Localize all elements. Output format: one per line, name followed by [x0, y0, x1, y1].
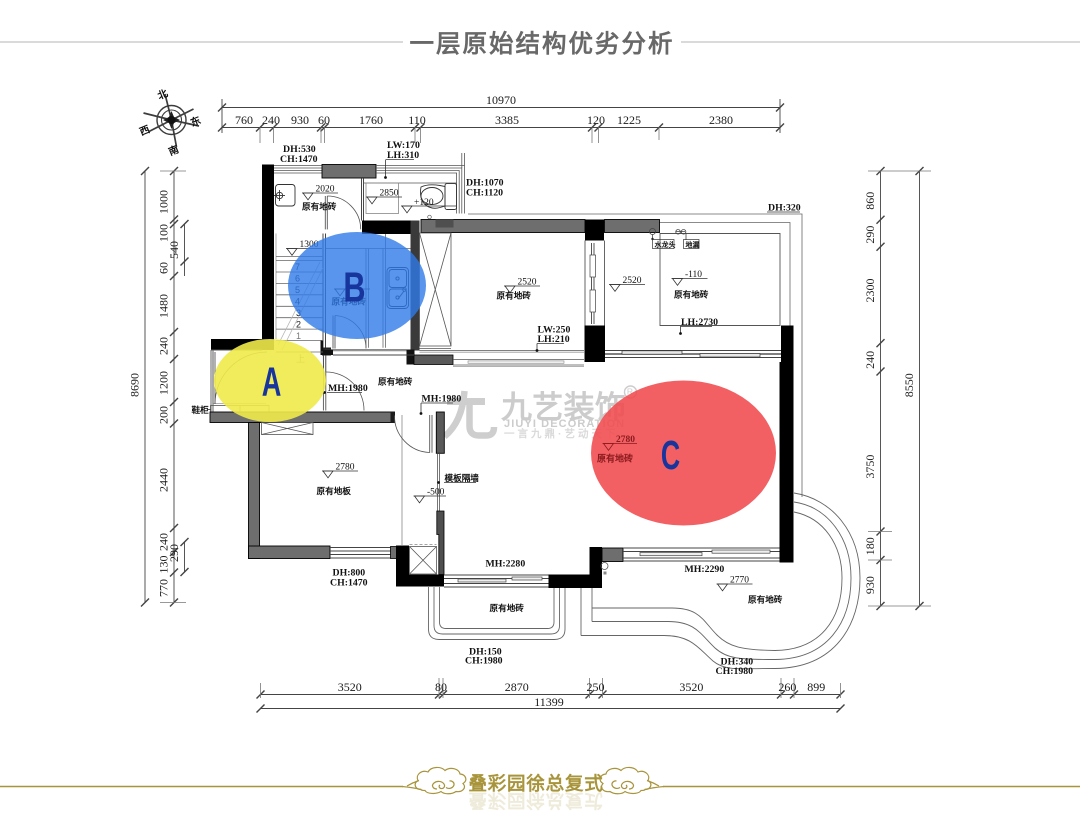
- svg-text:CH:1120: CH:1120: [466, 188, 503, 199]
- svg-text:原有地砖: 原有地砖: [497, 290, 532, 301]
- svg-text:899: 899: [807, 680, 825, 694]
- svg-text:60: 60: [318, 113, 330, 127]
- svg-text:CH:1470: CH:1470: [330, 578, 368, 589]
- svg-text:8690: 8690: [128, 373, 142, 397]
- svg-text:原有地砖: 原有地砖: [302, 201, 337, 212]
- svg-text:1200: 1200: [157, 371, 171, 395]
- svg-text:260: 260: [778, 680, 796, 694]
- svg-text:2520: 2520: [518, 278, 537, 288]
- svg-text:110: 110: [408, 113, 426, 127]
- svg-text:240: 240: [157, 337, 171, 355]
- svg-text:CH:1470: CH:1470: [280, 154, 318, 165]
- svg-text:地漏: 地漏: [686, 240, 700, 249]
- svg-text:原有地砖: 原有地砖: [490, 602, 525, 613]
- svg-text:MH:2280: MH:2280: [486, 559, 526, 570]
- svg-text:MH:2290: MH:2290: [685, 564, 725, 575]
- svg-text:原有地砖: 原有地砖: [597, 453, 633, 464]
- svg-text:2020: 2020: [316, 185, 335, 195]
- svg-text:3520: 3520: [679, 680, 703, 694]
- svg-text:水龙头: 水龙头: [655, 240, 676, 249]
- svg-text:2520: 2520: [623, 276, 642, 286]
- svg-text:2: 2: [296, 320, 301, 330]
- svg-text:2780: 2780: [616, 435, 635, 445]
- svg-text:540: 540: [167, 241, 181, 259]
- svg-text:C: C: [661, 434, 680, 479]
- svg-text:3385: 3385: [495, 113, 519, 127]
- svg-text:鞋柜: 鞋柜: [192, 404, 210, 415]
- svg-text:原有地砖: 原有地砖: [748, 594, 783, 605]
- svg-text:290: 290: [863, 226, 877, 244]
- svg-text:250: 250: [587, 680, 605, 694]
- svg-text:1: 1: [296, 331, 301, 341]
- svg-text:200: 200: [157, 406, 171, 424]
- svg-text:180: 180: [863, 537, 877, 555]
- svg-text:130: 130: [157, 556, 171, 574]
- svg-text:60: 60: [157, 262, 171, 274]
- svg-text:100: 100: [157, 224, 171, 242]
- svg-text:2380: 2380: [709, 113, 733, 127]
- svg-text:1480: 1480: [157, 294, 171, 318]
- svg-text:11399: 11399: [534, 695, 564, 709]
- svg-text:1000: 1000: [157, 190, 171, 214]
- svg-text:叠彩园徐总复式: 叠彩园徐总复式: [468, 790, 603, 811]
- svg-text:930: 930: [291, 113, 309, 127]
- svg-text:模板隔墙: 模板隔墙: [445, 472, 480, 483]
- svg-text:10970: 10970: [486, 93, 516, 107]
- svg-text:CH:1980: CH:1980: [716, 666, 754, 677]
- svg-text:8550: 8550: [902, 373, 916, 397]
- svg-text:2870: 2870: [505, 680, 529, 694]
- svg-text:+120: +120: [414, 198, 434, 208]
- svg-text:CH:1980: CH:1980: [465, 656, 503, 667]
- svg-text:3750: 3750: [863, 455, 877, 479]
- svg-text:2440: 2440: [157, 468, 171, 492]
- svg-text:一层原始结构优劣分析: 一层原始结构优劣分析: [410, 30, 675, 58]
- svg-text:2850: 2850: [380, 189, 399, 199]
- svg-text:原有地砖: 原有地砖: [378, 376, 413, 387]
- svg-text:2300: 2300: [863, 279, 877, 303]
- svg-text:3520: 3520: [338, 680, 362, 694]
- svg-text:原有地砖: 原有地砖: [674, 289, 709, 300]
- svg-text:1760: 1760: [359, 113, 383, 127]
- svg-text:A: A: [262, 360, 282, 405]
- svg-text:B: B: [343, 264, 365, 311]
- svg-text:原有地板: 原有地板: [317, 485, 352, 496]
- svg-text:860: 860: [863, 192, 877, 210]
- svg-text:770: 770: [157, 579, 171, 597]
- svg-text:760: 760: [235, 113, 253, 127]
- svg-text:2780: 2780: [336, 463, 355, 473]
- svg-text:120: 120: [587, 113, 605, 127]
- svg-text:1225: 1225: [617, 113, 641, 127]
- svg-text:-110: -110: [685, 270, 702, 280]
- svg-text:2770: 2770: [730, 576, 749, 586]
- svg-text:930: 930: [863, 576, 877, 594]
- svg-text:-500: -500: [427, 488, 445, 498]
- svg-text:240: 240: [863, 351, 877, 369]
- svg-text:80: 80: [435, 680, 447, 694]
- svg-text:240: 240: [262, 113, 280, 127]
